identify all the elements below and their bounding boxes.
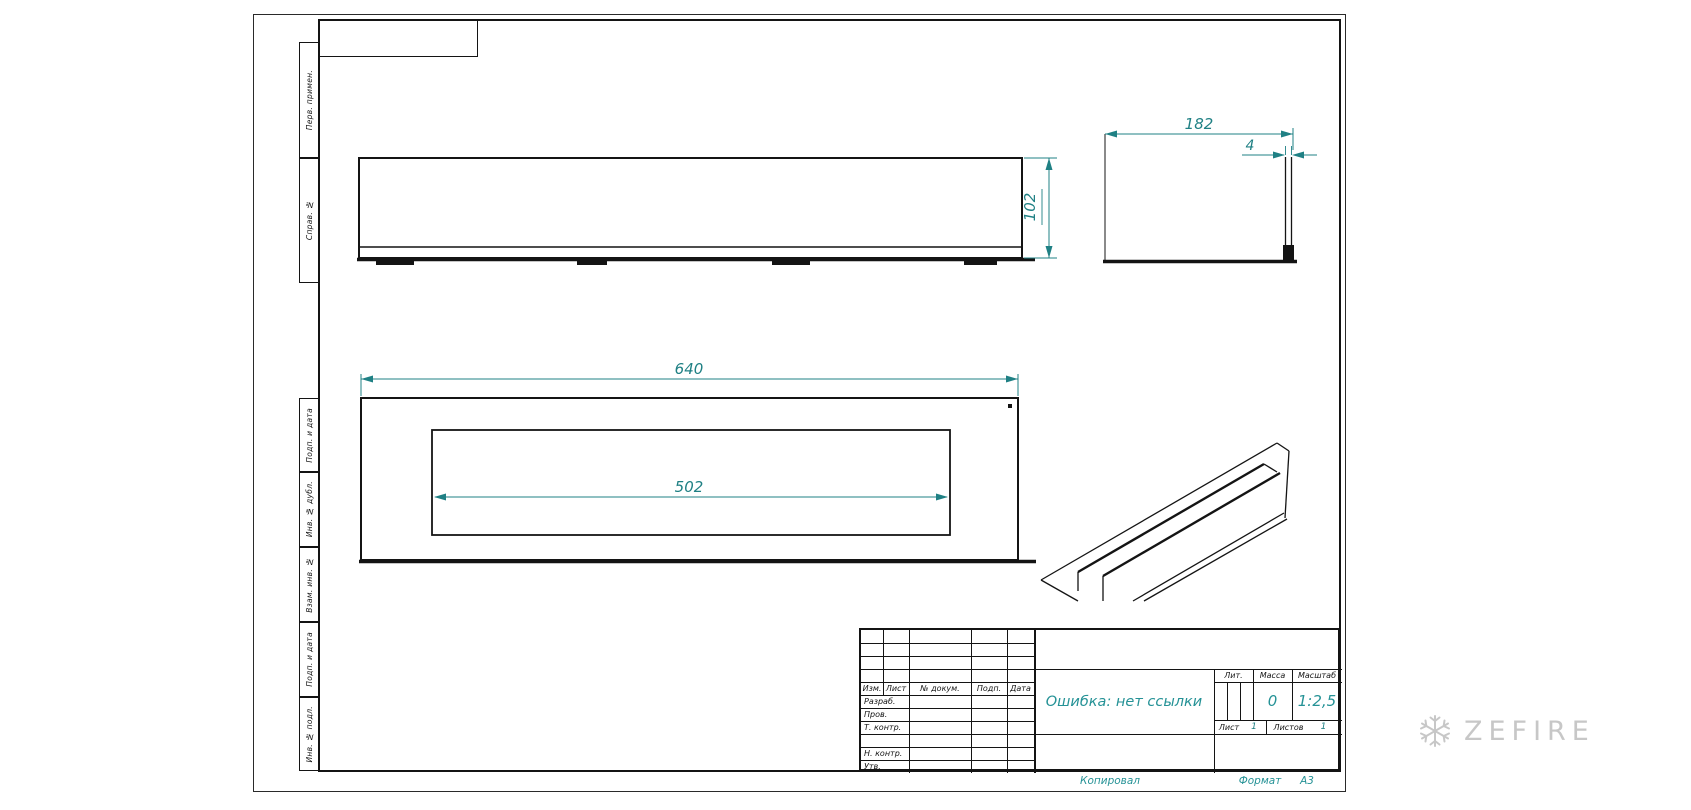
arrowhead [1006,376,1018,383]
tb-scale-label: Масштаб [1292,669,1342,682]
tb-row-blank [861,734,912,747]
dim-text-502: 502 [675,478,704,496]
dim-text-4: 4 [1246,138,1255,154]
brand-name: ZEFIRE [1464,716,1595,747]
iso-left-edge [1041,580,1078,601]
copied-label: Копировал [1040,773,1180,788]
front-view-foot [772,260,810,265]
plan-view-hole-mark [1008,404,1012,408]
dim-text-182: 182 [1185,115,1214,133]
arrowhead [1046,246,1053,258]
tb-col-docnum: № докум. [909,682,971,695]
tb-sheet-label: Лист [1214,720,1244,734]
tb-sheets-value: 1 [1311,720,1336,734]
front-view [357,158,1035,265]
front-view-foot [376,260,414,265]
snowflake-icon [1416,712,1454,750]
arrowhead [1046,158,1053,170]
tb-row-tkontr: Т. контр. [861,721,912,734]
front-view-foot [577,260,607,265]
titleblock-grid-line [1240,682,1241,720]
side-view-wall-foot [1283,245,1294,262]
arrowhead [361,376,373,383]
cad-drawing-sheet: Перв. примен. Справ. № Подп. и дата Инв.… [0,0,1691,810]
iso-rim-edge [1103,473,1280,576]
tb-scale-value: 1:2,5 [1292,682,1342,720]
tb-col-izm: Изм. [861,682,883,695]
arrowhead [1105,131,1117,138]
title-block: Изм. Лист № докум. Подп. Дата Разраб. Пр… [859,628,1340,771]
format-value: А3 [1290,773,1324,788]
tb-row-razrab: Разраб. [861,695,912,708]
titleblock-grid-line [1227,682,1228,720]
drawing-views: 102 182 4 [0,0,1691,810]
arrowhead [1292,152,1304,159]
format-label: Формат [1236,773,1284,788]
iso-right-edge [1285,451,1289,518]
dim-text-640: 640 [675,360,704,378]
tb-mass-value: 0 [1253,682,1292,720]
iso-front-thickness [1144,519,1287,601]
tb-sheet-value: 1 [1244,720,1264,734]
titleblock-grid-line [861,656,1034,657]
iso-right-end [1277,443,1289,451]
arrowhead [1281,131,1293,138]
tb-col-list: Лист [883,682,909,695]
arrowhead [1273,152,1285,159]
tb-mass-label: Масса [1253,669,1292,682]
tb-lit-label: Лит. [1214,669,1253,682]
document-name: Ошибка: нет ссылки [1034,669,1214,734]
titleblock-grid-line [971,630,972,773]
titleblock-grid-line [861,643,1034,644]
zefire-watermark: ZEFIRE [1416,712,1595,750]
titleblock-grid-line [861,669,1034,670]
arrowhead [936,494,948,501]
iso-rim-right-end [1264,464,1277,472]
tb-row-nkontr: Н. контр. [861,747,912,760]
dim-text-102: 102 [1021,193,1039,222]
arrowhead [434,494,446,501]
isometric-view [1041,443,1289,601]
side-view [1103,134,1297,262]
front-view-foot [964,260,997,265]
front-view-outline [359,158,1022,258]
titleblock-grid-line [861,734,1342,735]
iso-outer-edge [1041,443,1277,580]
iso-rim-edge [1078,464,1264,572]
tb-row-prov: Пров. [861,708,912,721]
tb-col-data: Дата [1007,682,1034,695]
titleblock-grid-line [1007,630,1008,773]
tb-sheets-label: Листов [1266,720,1311,734]
tb-row-utv: Утв. [861,760,912,773]
tb-col-podp: Подп. [971,682,1007,695]
